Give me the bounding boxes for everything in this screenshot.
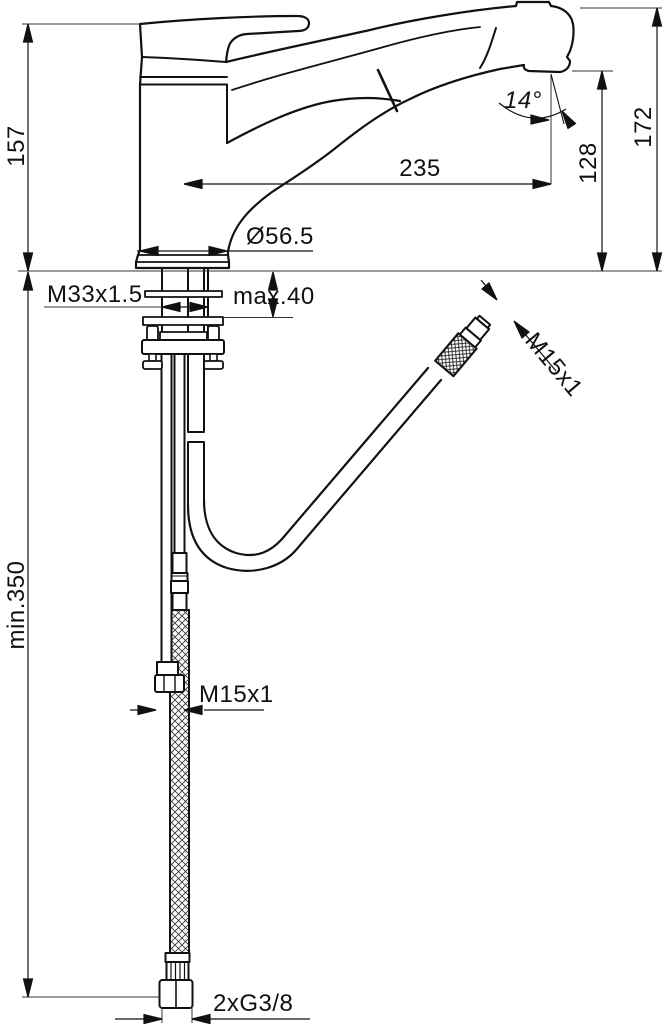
- label-m15-top: M15x1: [519, 328, 588, 402]
- label-157: 157: [3, 125, 30, 167]
- dimension-labels: 157 min.350 172 128 235 14° Ø56.5 M33x1.…: [3, 87, 657, 1017]
- faucet-silhouette: [136, 2, 574, 268]
- dimension-lines: [24, 8, 662, 1024]
- supply-hose-end: [160, 953, 193, 1008]
- label-angle: 14°: [504, 87, 542, 114]
- dimension-m33: [162, 303, 208, 312]
- hose-connector: [435, 313, 494, 377]
- label-max40: max.40: [233, 283, 315, 310]
- label-m33: M33x1.5: [47, 281, 143, 308]
- faucet-body: [136, 2, 574, 268]
- label-235: 235: [399, 155, 441, 182]
- label-172: 172: [630, 106, 657, 148]
- label-m15-mid: M15x1: [199, 681, 274, 708]
- label-128: 128: [575, 142, 602, 184]
- underdeck-plumbing: [142, 268, 494, 1008]
- label-g38: 2xG3/8: [213, 990, 293, 1017]
- pullout-hose: [188, 313, 494, 571]
- extension-lines: [18, 8, 662, 1023]
- supply-pipe-2: [171, 354, 188, 610]
- label-min350: min.350: [3, 561, 30, 650]
- label-diameter: Ø56.5: [246, 223, 314, 250]
- faucet-technical-drawing: 157 min.350 172 128 235 14° Ø56.5 M33x1.…: [0, 0, 664, 1024]
- drawing-canvas: 157 min.350 172 128 235 14° Ø56.5 M33x1.…: [0, 0, 664, 1024]
